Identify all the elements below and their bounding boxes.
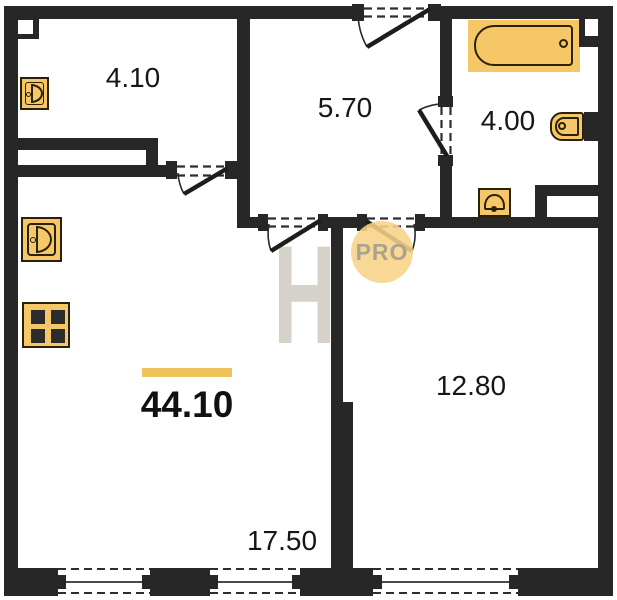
room-area-label-bathroom: 4.00 bbox=[481, 105, 536, 137]
wall-hallway-south bbox=[237, 217, 258, 228]
window-icon bbox=[373, 592, 518, 594]
stove-burner bbox=[31, 310, 45, 324]
total-area-underline bbox=[142, 368, 232, 377]
pro-badge: PRO bbox=[351, 221, 413, 283]
door-swing-arcs bbox=[178, 11, 445, 251]
door-jamb bbox=[352, 4, 364, 21]
window-icon bbox=[210, 592, 300, 594]
wall-bathroom-west bbox=[440, 19, 452, 96]
watermark-logo: H bbox=[274, 244, 336, 346]
window-jamb bbox=[58, 575, 66, 589]
bathtub-basin bbox=[474, 25, 573, 66]
stove-burner bbox=[51, 329, 65, 343]
room-area-label-living: 17.50 bbox=[247, 525, 317, 557]
wall-bathroom-niche bbox=[535, 185, 547, 228]
wall-shaft bbox=[585, 36, 598, 47]
sink-drain bbox=[491, 206, 497, 212]
washing-machine-icon bbox=[21, 217, 62, 262]
door-jamb bbox=[415, 214, 425, 231]
sink-icon bbox=[478, 188, 511, 217]
wall-bottom bbox=[150, 568, 210, 596]
wall-hallway-south bbox=[425, 217, 598, 228]
stove-icon bbox=[22, 302, 70, 348]
wall-storage-partition bbox=[18, 165, 166, 177]
wall-storage-hallway bbox=[237, 19, 250, 218]
door-leaves bbox=[184, 9, 447, 251]
entrance-door-icon bbox=[367, 9, 430, 47]
window-jamb bbox=[210, 575, 218, 589]
door-jamb bbox=[166, 161, 177, 179]
floor-plan: H bbox=[0, 0, 617, 600]
window-jamb bbox=[373, 575, 382, 589]
stove-burner bbox=[31, 329, 45, 343]
door-jamb bbox=[225, 161, 237, 179]
wall-bathroom-west bbox=[440, 166, 452, 217]
window-glass-line bbox=[373, 581, 518, 583]
room-area-label-bedroom: 12.80 bbox=[436, 370, 506, 402]
wall-top-left bbox=[4, 6, 358, 19]
toilet-icon bbox=[550, 112, 584, 141]
wall-left bbox=[4, 8, 18, 596]
window-icon bbox=[58, 592, 150, 594]
door-jamb bbox=[438, 96, 453, 107]
window-icon bbox=[210, 568, 300, 570]
wall-bottom bbox=[518, 568, 598, 596]
window-glass-line bbox=[210, 581, 300, 583]
washer-knob bbox=[30, 237, 36, 243]
wall-top-right bbox=[433, 6, 613, 19]
wall-bottom bbox=[18, 568, 58, 596]
window-jamb bbox=[292, 575, 300, 589]
toilet-flush bbox=[558, 122, 566, 130]
window-jamb bbox=[142, 575, 150, 589]
room-area-label-hallway: 5.70 bbox=[318, 92, 373, 124]
wall-storage-partition bbox=[18, 138, 158, 150]
storage-door-icon bbox=[184, 168, 228, 194]
window-glass-line bbox=[58, 581, 150, 583]
window-icon bbox=[373, 568, 518, 570]
wall-right bbox=[598, 6, 613, 596]
shaft-void bbox=[18, 20, 33, 34]
toilet-cistern-wall bbox=[584, 112, 598, 141]
bathtub-drain bbox=[559, 39, 568, 48]
door-jamb bbox=[438, 155, 453, 166]
door-jamb bbox=[318, 214, 328, 231]
total-area-label: 44.10 bbox=[141, 384, 234, 426]
washing-machine-icon bbox=[20, 77, 49, 110]
wall-bottom bbox=[300, 568, 373, 596]
door-jamb bbox=[258, 214, 268, 231]
window-icon bbox=[58, 568, 150, 570]
pro-badge-label: PRO bbox=[356, 239, 409, 266]
bathtub-icon bbox=[468, 20, 580, 72]
door-jamb bbox=[428, 4, 441, 21]
wall-living-bedroom bbox=[331, 228, 343, 402]
washer-knob bbox=[26, 92, 31, 97]
room-area-label-storage: 4.10 bbox=[106, 62, 161, 94]
bathroom-door-icon bbox=[419, 110, 447, 156]
wall-living-bedroom bbox=[331, 402, 353, 568]
door-opening-dashes bbox=[177, 9, 451, 227]
window-jamb bbox=[509, 575, 518, 589]
stove-burner bbox=[51, 310, 65, 324]
watermark-letter: H bbox=[274, 244, 337, 346]
